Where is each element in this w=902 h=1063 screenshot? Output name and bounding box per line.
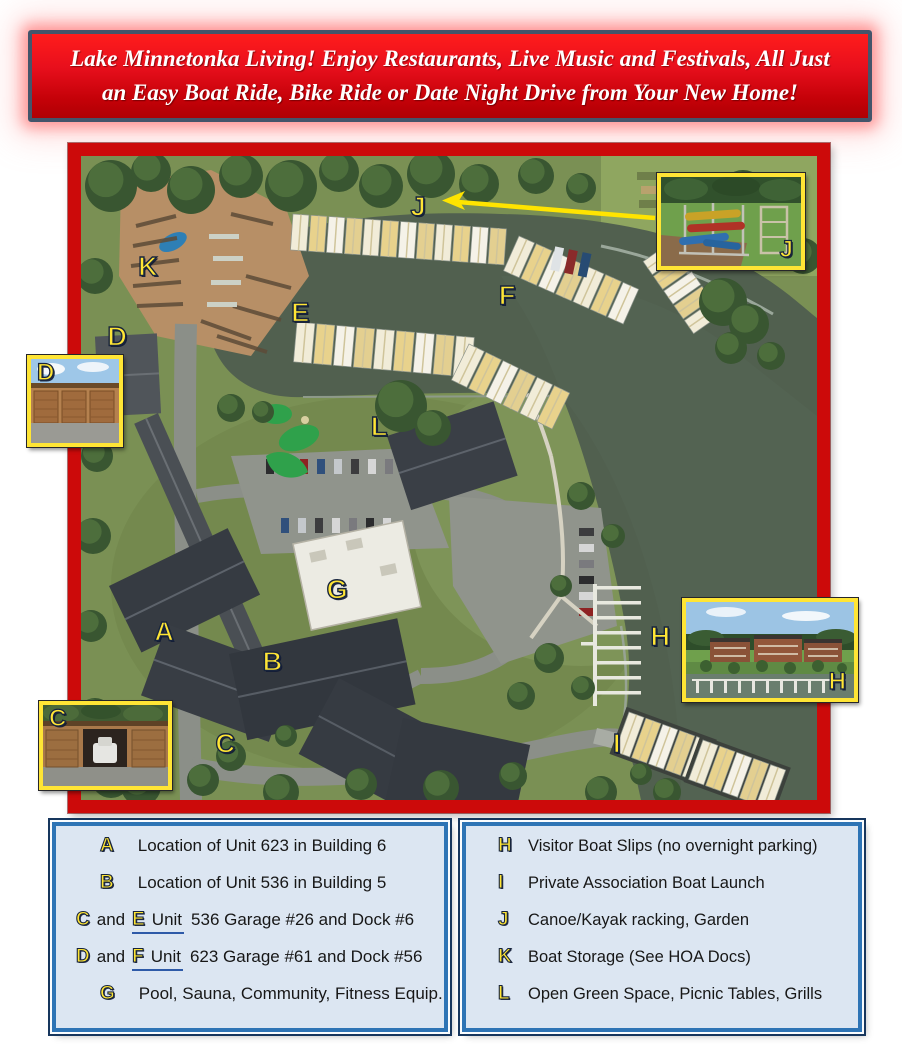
legend-item-B: BLocation of Unit 536 in Building 5 — [62, 872, 438, 909]
legend-underlined-group: FUnit — [132, 946, 183, 971]
map-label-J: J — [411, 191, 426, 222]
inset-photo-j: J — [657, 173, 805, 270]
legend-item-text: Visitor Boat Slips (no overnight parking… — [528, 837, 818, 856]
legend-item-text: Pool, Sauna, Community, Fitness Equip. — [139, 984, 443, 1004]
inset-letter-j: J — [780, 236, 793, 264]
flyer-page: Lake Minnetonka Living! Enjoy Restaurant… — [0, 0, 902, 1063]
headline-banner: Lake Minnetonka Living! Enjoy Restaurant… — [28, 30, 872, 122]
map-label-C: C — [216, 728, 236, 759]
legend-item-text: Location of Unit 536 in Building 5 — [138, 873, 387, 893]
legend-letter-J: J — [498, 909, 512, 931]
legend-and-word: and — [97, 947, 125, 967]
map-label-D: D — [107, 321, 127, 352]
legend-underlined-word: Unit — [151, 947, 181, 967]
headline-line-1: Lake Minnetonka Living! Enjoy Restaurant… — [70, 42, 830, 76]
legend-box-units: ALocation of Unit 623 in Building 6BLoca… — [52, 822, 448, 1032]
legend-and-word: and — [97, 910, 125, 930]
map-label-E: E — [291, 298, 309, 329]
map-label-B: B — [263, 647, 283, 678]
legend-letter-E: E — [132, 909, 145, 931]
map-label-G: G — [327, 575, 348, 606]
legend-box-amenities: HVisitor Boat Slips (no overnight parkin… — [462, 822, 862, 1032]
legend-underlined-word: Unit — [152, 910, 182, 930]
legend-item-I: IPrivate Association Boat Launch — [472, 872, 852, 909]
callout-arrow-j — [438, 188, 662, 230]
inset-letter-h: H — [829, 668, 846, 696]
map-label-K: K — [138, 251, 158, 282]
legend-item-C: CandEUnit536 Garage #26 and Dock #6 — [62, 909, 438, 946]
legend-item-text: Private Association Boat Launch — [528, 874, 765, 893]
legend-item-text: Open Green Space, Picnic Tables, Grills — [528, 985, 822, 1004]
legend-item-text: Boat Storage (See HOA Docs) — [528, 948, 751, 967]
legend-item-H: HVisitor Boat Slips (no overnight parkin… — [472, 835, 852, 872]
legend-letter-F: F — [132, 946, 144, 968]
legend-letter-G: G — [100, 983, 115, 1005]
map-label-A: A — [154, 616, 174, 647]
legend-item-text: 623 Garage #61 and Dock #56 — [190, 947, 423, 967]
legend-letter-I: I — [498, 872, 512, 894]
legend-letter-D: D — [76, 946, 90, 968]
legend-item-D: DandFUnit623 Garage #61 and Dock #56 — [62, 946, 438, 983]
legend-item-J: JCanoe/Kayak racking, Garden — [472, 909, 852, 946]
inset-photo-h: H — [682, 598, 858, 702]
inset-photo-c: C — [39, 701, 172, 790]
legend-letter-K: K — [498, 946, 512, 968]
inset-photo-d: D — [27, 355, 123, 447]
legend-letter-L: L — [498, 983, 512, 1005]
legend-item-text: Canoe/Kayak racking, Garden — [528, 911, 749, 930]
legend-item-text: Location of Unit 623 in Building 6 — [138, 836, 387, 856]
inset-letter-d: D — [37, 359, 54, 387]
headline-line-2: an Easy Boat Ride, Bike Ride or Date Nig… — [102, 76, 798, 110]
map-label-L: L — [371, 412, 388, 443]
legend-letter-C: C — [76, 909, 90, 931]
legend-item-A: ALocation of Unit 623 in Building 6 — [62, 835, 438, 872]
legend-letter-B: B — [100, 872, 114, 894]
legend-item-text: 536 Garage #26 and Dock #6 — [191, 910, 414, 930]
map-label-H: H — [650, 622, 670, 653]
legend-underlined-group: EUnit — [132, 909, 184, 934]
legend-item-L: LOpen Green Space, Picnic Tables, Grills — [472, 983, 852, 1020]
legend-letter-A: A — [100, 835, 114, 857]
inset-letter-c: C — [49, 705, 66, 733]
legend-item-K: KBoat Storage (See HOA Docs) — [472, 946, 852, 983]
map-label-I: I — [613, 728, 621, 759]
legend-letter-H: H — [498, 835, 512, 857]
legend-item-G: GPool, Sauna, Community, Fitness Equip. — [62, 983, 438, 1020]
map-label-F: F — [499, 280, 516, 311]
